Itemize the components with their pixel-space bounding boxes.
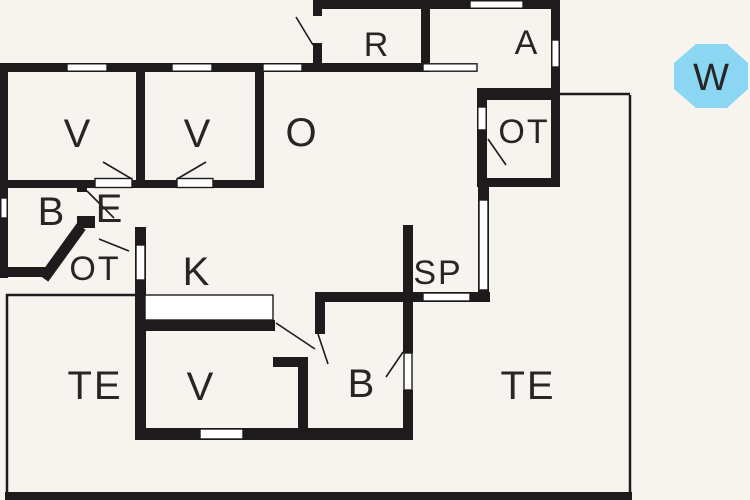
room-label-o: O bbox=[285, 111, 318, 155]
window bbox=[172, 64, 212, 71]
wall-segment bbox=[298, 357, 308, 428]
compass-label: W bbox=[693, 57, 729, 99]
wall-segment bbox=[5, 492, 632, 500]
room-label-r: R bbox=[364, 26, 391, 64]
wall-segment bbox=[315, 292, 325, 334]
floor-plan-drawing: V V O R A OT B E OT K SP TE V B TE W bbox=[0, 0, 750, 500]
room-label-ot-left: OT bbox=[69, 250, 120, 288]
door-threshold bbox=[177, 179, 213, 188]
kitchen-counter bbox=[145, 295, 273, 320]
room-label-te-right: TE bbox=[500, 364, 555, 408]
window bbox=[263, 64, 302, 71]
wall-segment bbox=[477, 178, 560, 187]
wall-segment bbox=[255, 72, 264, 188]
window bbox=[478, 107, 486, 130]
window bbox=[479, 200, 488, 290]
room-label-v1: V bbox=[64, 112, 93, 156]
wall-segment bbox=[132, 180, 177, 188]
window bbox=[200, 429, 243, 439]
window bbox=[470, 1, 523, 8]
room-label-sp: SP bbox=[413, 254, 462, 292]
wall-segment bbox=[403, 390, 413, 428]
wall-segment bbox=[77, 216, 95, 228]
wall-segment bbox=[313, 9, 322, 16]
window bbox=[404, 353, 412, 390]
wall-segment bbox=[313, 43, 322, 65]
wall-segment bbox=[143, 320, 275, 331]
room-label-k: K bbox=[183, 250, 212, 294]
room-label-b-bottom: B bbox=[348, 362, 377, 406]
compass: W bbox=[674, 44, 748, 108]
room-label-ot-right: OT bbox=[498, 113, 549, 151]
wall-segment bbox=[0, 63, 8, 278]
wall-segment bbox=[213, 180, 264, 188]
window bbox=[1, 198, 7, 218]
room-label-te-left: TE bbox=[67, 364, 122, 408]
wall-segment bbox=[0, 180, 95, 188]
window bbox=[67, 64, 107, 71]
wall-segment bbox=[136, 72, 145, 188]
window bbox=[552, 40, 559, 67]
room-label-v2: V bbox=[184, 112, 213, 156]
window bbox=[423, 293, 470, 301]
room-label-e: E bbox=[96, 187, 125, 231]
wall-segment bbox=[477, 88, 560, 100]
room-label-a: A bbox=[515, 24, 540, 62]
wall-segment bbox=[77, 188, 87, 192]
floor-plan-page: V V O R A OT B E OT K SP TE V B TE W bbox=[0, 0, 750, 500]
wall-segment bbox=[403, 225, 413, 302]
wall-segment bbox=[135, 428, 413, 440]
window bbox=[136, 245, 145, 280]
room-label-v-bottom: V bbox=[187, 365, 216, 409]
window bbox=[423, 64, 477, 71]
wall-segment bbox=[421, 9, 430, 72]
room-label-b-top: B bbox=[38, 190, 67, 234]
wall-segment bbox=[403, 302, 413, 353]
